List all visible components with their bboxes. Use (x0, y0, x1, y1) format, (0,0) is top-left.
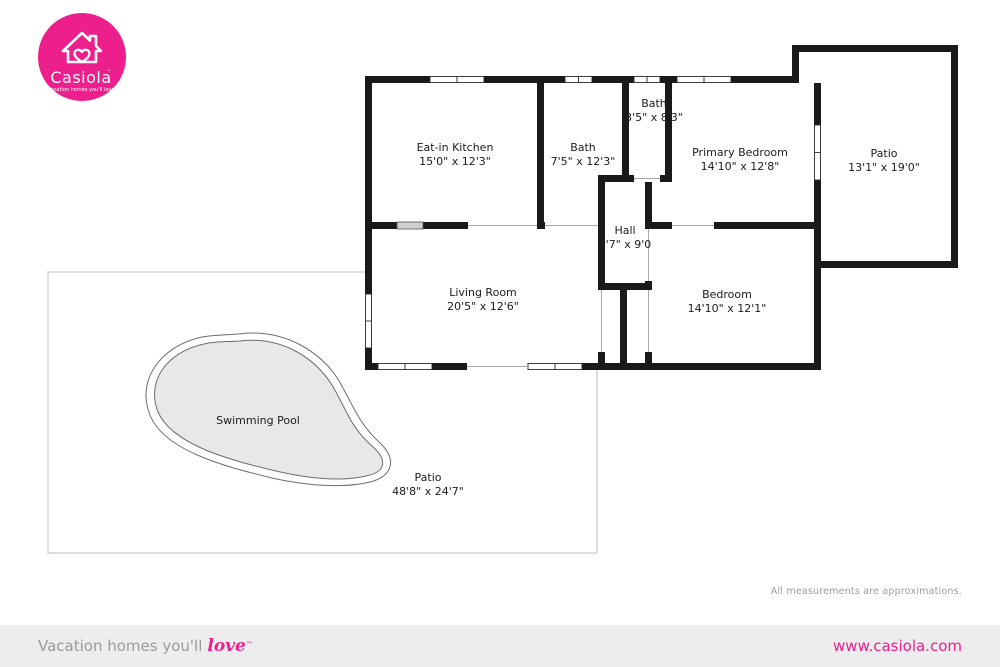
logo-tagline: Vacation homes you'll love (48, 87, 115, 93)
svg-text:Living Room: Living Room (449, 286, 517, 299)
svg-text:Patio: Patio (871, 147, 898, 160)
svg-text:14'10" x 12'1": 14'10" x 12'1" (688, 302, 767, 315)
measurements-disclaimer: All measurements are approximations. (771, 586, 962, 597)
svg-text:20'5" x 12'6": 20'5" x 12'6" (447, 300, 519, 313)
svg-text:Bedroom: Bedroom (702, 288, 752, 301)
svg-text:Hall: Hall (614, 224, 635, 237)
svg-text:Bath: Bath (570, 141, 596, 154)
svg-text:15'0" x 12'3": 15'0" x 12'3" (419, 155, 491, 168)
wall-insert (397, 222, 423, 229)
svg-text:3'7" x 9'0: 3'7" x 9'0 (599, 238, 652, 251)
svg-text:Bath: Bath (641, 97, 667, 110)
room-label-swimming-pool: Swimming Pool (216, 414, 300, 427)
logo-wordmark: Casiola (50, 68, 111, 87)
footer-tagline-text: Vacation homes you'll (38, 637, 202, 655)
svg-text:7'5" x 12'3": 7'5" x 12'3" (551, 155, 616, 168)
floorplan-canvas: Eat-in Kitchen 15'0" x 12'3" Bath 7'5" x… (0, 0, 1000, 667)
casiola-logo: Casiola ™ Vacation homes you'll love (36, 11, 128, 103)
svg-text:14'10" x 12'8": 14'10" x 12'8" (701, 160, 780, 173)
svg-text:3'5" x 8'3": 3'5" x 8'3" (625, 111, 683, 124)
footer-love-script: love (207, 636, 246, 656)
room-label-kitchen: Eat-in Kitchen 15'0" x 12'3" (417, 141, 494, 168)
room-label-primary-bedroom: Primary Bedroom 14'10" x 12'8" (692, 146, 788, 173)
footer-love-mark: ~ (246, 638, 253, 647)
room-label-living-room: Living Room 20'5" x 12'6" (447, 286, 519, 313)
footer-tagline: Vacation homes you'lllove~ (38, 636, 253, 656)
footer-bar: Vacation homes you'lllove~ www.casiola.c… (0, 625, 1000, 667)
svg-text:Patio: Patio (415, 471, 442, 484)
svg-text:Swimming Pool: Swimming Pool (216, 414, 300, 427)
svg-text:13'1" x 19'0": 13'1" x 19'0" (848, 161, 920, 174)
svg-text:Primary Bedroom: Primary Bedroom (692, 146, 788, 159)
svg-text:48'8" x 24'7": 48'8" x 24'7" (392, 485, 464, 498)
website-link[interactable]: www.casiola.com (833, 637, 962, 655)
svg-text:Eat-in Kitchen: Eat-in Kitchen (417, 141, 494, 154)
logo-trademark: ™ (107, 69, 112, 75)
